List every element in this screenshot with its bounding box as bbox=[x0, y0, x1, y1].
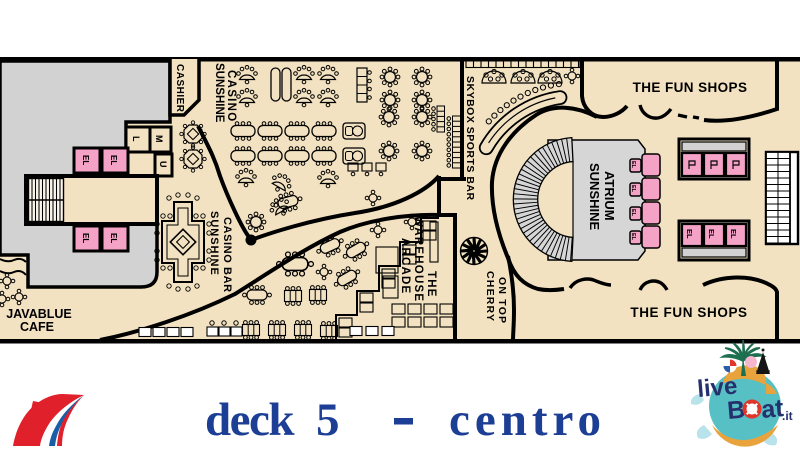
svg-text:ATRIUM: ATRIUM bbox=[602, 171, 617, 221]
svg-text:EL: EL bbox=[707, 229, 716, 239]
svg-text:U: U bbox=[158, 161, 168, 168]
svg-text:SUNSHINE: SUNSHINE bbox=[587, 163, 602, 231]
svg-text:EL: EL bbox=[685, 229, 694, 239]
svg-text:CASINO BAR: CASINO BAR bbox=[221, 217, 233, 293]
svg-text:EL: EL bbox=[630, 161, 636, 169]
svg-text:CHERRY: CHERRY bbox=[484, 271, 496, 322]
svg-text:THE FUN SHOPS: THE FUN SHOPS bbox=[633, 80, 748, 95]
svg-text:SUNSHINE: SUNSHINE bbox=[208, 211, 220, 276]
svg-text:.it: .it bbox=[782, 409, 793, 423]
svg-text:L: L bbox=[131, 136, 141, 142]
svg-text:5: 5 bbox=[316, 394, 340, 446]
svg-text:EL: EL bbox=[81, 155, 90, 165]
svg-text:M: M bbox=[154, 135, 164, 143]
svg-text:ON TOP: ON TOP bbox=[496, 277, 508, 324]
svg-text:ARCADE: ARCADE bbox=[399, 238, 411, 294]
svg-text:THE: THE bbox=[425, 271, 437, 298]
svg-text:EL: EL bbox=[109, 233, 118, 243]
svg-text:CASINO: CASINO bbox=[225, 70, 237, 123]
svg-text:centro: centro bbox=[449, 394, 606, 446]
svg-text:SUNSHINE: SUNSHINE bbox=[213, 63, 225, 123]
svg-text:EL: EL bbox=[630, 185, 636, 193]
svg-text:deck: deck bbox=[205, 394, 295, 446]
svg-text:SKYBOX SPORTS BAR: SKYBOX SPORTS BAR bbox=[464, 76, 476, 201]
svg-text:EL: EL bbox=[81, 233, 90, 243]
svg-text:CAFE: CAFE bbox=[20, 320, 54, 334]
svg-text:EL: EL bbox=[729, 229, 738, 239]
svg-text:EL: EL bbox=[109, 155, 118, 165]
svg-text:THE FUN SHOPS: THE FUN SHOPS bbox=[630, 305, 747, 320]
svg-text:EL: EL bbox=[630, 209, 636, 217]
svg-text:EL: EL bbox=[630, 233, 636, 241]
svg-text:CASHIER: CASHIER bbox=[174, 64, 185, 113]
svg-text:JAVABLUE: JAVABLUE bbox=[6, 307, 72, 321]
